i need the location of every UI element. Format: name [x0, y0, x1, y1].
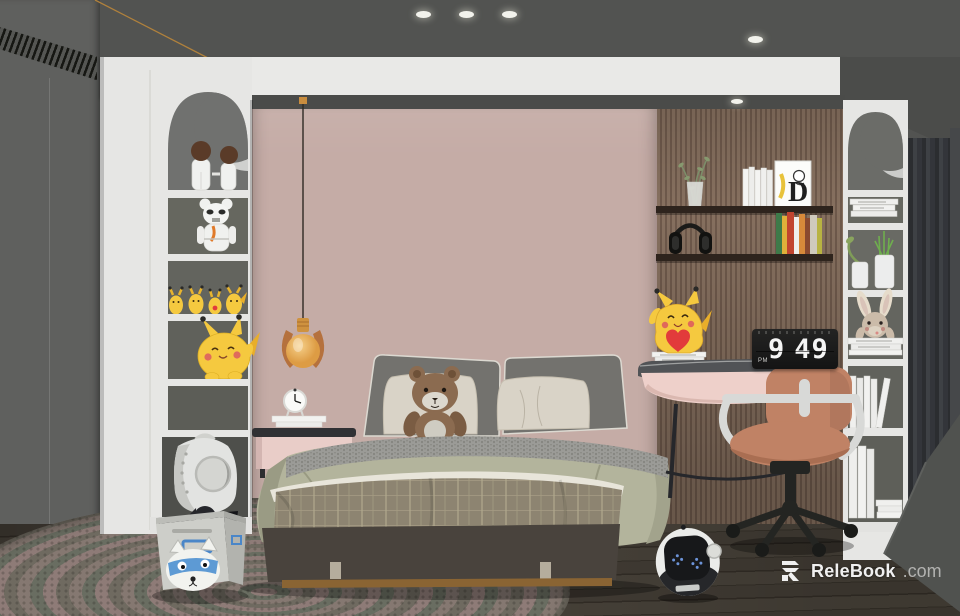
toy-storage-box [152, 506, 248, 604]
watermark-brand: ReleBook [811, 561, 896, 582]
white-books [743, 167, 773, 206]
plant-vase [677, 156, 710, 206]
bed [240, 355, 671, 600]
clock-minutes: 49 [794, 336, 829, 363]
plaid-blanket [274, 478, 622, 532]
clock-meridiem: PM [758, 358, 768, 364]
desk-leg [670, 404, 676, 498]
pendant-light [282, 97, 324, 368]
flip-clock: 9 49 PM [752, 329, 838, 369]
alarm-clock [272, 389, 326, 428]
scene-objects: D [0, 0, 960, 616]
book-stack [850, 199, 898, 217]
robot-toy [653, 522, 724, 603]
watermark: ReleBook.com [778, 558, 942, 584]
lower-shelf [656, 254, 833, 261]
relebook-logo-icon [778, 558, 804, 584]
watermark-suffix: .com [903, 561, 942, 582]
headphones-icon [669, 226, 712, 255]
string-light-cord [95, 0, 208, 58]
bedroom-render: D [0, 0, 960, 616]
bed-platform [262, 524, 620, 582]
pikachu-heart-figurine [646, 286, 712, 353]
colorful-books [776, 212, 822, 254]
framed-print: D [775, 161, 811, 208]
pet-capsule-backpack [174, 436, 237, 514]
empty-niche [168, 386, 248, 430]
upper-shelf [656, 206, 833, 213]
wall-shelves: D [656, 156, 833, 263]
print-letter: D [788, 177, 808, 208]
desk-chair [722, 367, 861, 557]
clock-hour: 9 [768, 336, 785, 363]
